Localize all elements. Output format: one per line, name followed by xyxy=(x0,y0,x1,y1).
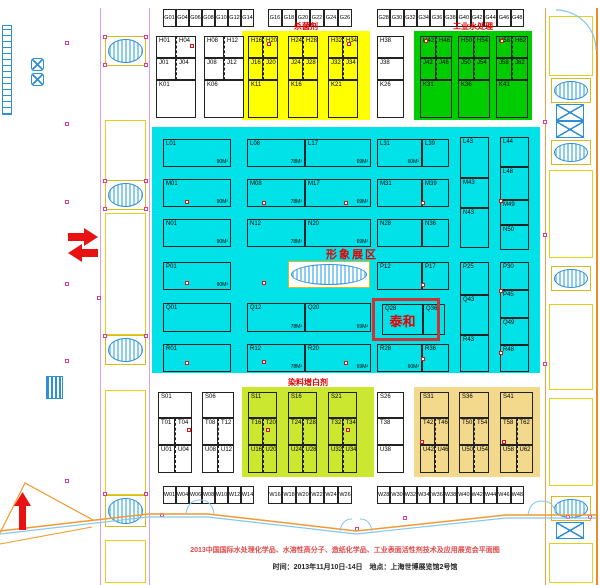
booth-H38: H38 xyxy=(377,36,404,58)
booth-N43: N43 xyxy=(460,208,489,248)
booth-W01: W01 xyxy=(163,486,176,504)
hydrant-marker-icon xyxy=(144,35,148,39)
booth-N12: N1278M² xyxy=(247,219,305,247)
booth-U32: U32 xyxy=(328,445,343,473)
booth-S11: S11 xyxy=(248,392,277,418)
booth-W38: W38 xyxy=(444,486,457,504)
booth-L48: L48 xyxy=(500,167,529,200)
booth-H46: H46 xyxy=(436,36,452,58)
booth-W26: W26 xyxy=(338,486,352,504)
booth-J54: J54 xyxy=(474,58,490,80)
booth-W12: W12 xyxy=(228,486,241,504)
booth-G08: G08 xyxy=(202,9,215,27)
booth-T32: T32 xyxy=(328,418,343,445)
booth-W06: W06 xyxy=(189,486,202,504)
booth-H50: H50 xyxy=(458,36,474,58)
booth-T28: T28 xyxy=(303,418,318,445)
booth-G01: G01 xyxy=(163,9,176,27)
booth-Q01: Q01 xyxy=(163,303,231,332)
booth-Q20: Q2069M² xyxy=(305,303,371,332)
booth-J24: J24 xyxy=(288,58,303,80)
booth-T24: T24 xyxy=(288,418,303,445)
booth-T38: T38 xyxy=(377,418,404,445)
equipment-marker-icon xyxy=(346,428,350,432)
hydrant-marker-icon xyxy=(65,41,69,45)
booth-U12: U12 xyxy=(218,445,234,473)
equipment-marker-icon xyxy=(262,360,266,364)
equipment-marker-icon xyxy=(185,361,189,365)
booth-N28: N28 xyxy=(377,219,422,247)
booth-G12: G12 xyxy=(228,9,241,27)
booth-G28: G28 xyxy=(377,9,390,27)
booth-H42: H42 xyxy=(420,36,436,58)
booth-S06: S06 xyxy=(202,392,234,418)
booth-H16: H16 xyxy=(248,36,263,58)
booth-R01: R01 xyxy=(163,344,231,372)
booth-Q12: Q1278M² xyxy=(247,303,305,332)
equipment-marker-icon xyxy=(190,44,194,48)
hydrant-marker-icon xyxy=(588,515,592,519)
booth-J32: J32 xyxy=(328,58,343,80)
booth-L01: L0190M² xyxy=(163,139,231,167)
booth-W18: W18 xyxy=(282,486,296,504)
booth-L08: L0878M² xyxy=(247,139,305,167)
booth-Q49: Q49 xyxy=(500,318,529,345)
hydrant-marker-icon xyxy=(566,515,570,519)
booth-T01: T01 xyxy=(158,418,175,445)
booth-H34: H34 xyxy=(343,36,358,58)
hydrant-marker-icon xyxy=(103,63,107,67)
booth-J62: J62 xyxy=(512,58,528,80)
booth-W04: W04 xyxy=(176,486,189,504)
hydrant-marker-icon xyxy=(103,35,107,39)
booth-W44: W44 xyxy=(484,486,497,504)
booth-L44: L44 xyxy=(500,137,529,167)
booth-M17: M1769M² xyxy=(305,179,371,207)
hydrant-marker-icon xyxy=(65,122,69,126)
booth-U46: U46 xyxy=(435,445,450,473)
industrial-water-zone-label: 工业水处理 xyxy=(414,21,532,32)
booth-K01: K01 xyxy=(156,80,196,118)
booth-K31: K31 xyxy=(420,80,452,118)
hydrant-marker-icon xyxy=(355,527,359,531)
booth-J50: J50 xyxy=(458,58,474,80)
equipment-marker-icon xyxy=(499,351,503,355)
booth-H54: H54 xyxy=(474,36,490,58)
booth-L17: L1769M² xyxy=(305,139,371,167)
booth-U54: U54 xyxy=(474,445,489,473)
booth-R20: R2069M² xyxy=(305,344,371,372)
equipment-marker-icon xyxy=(421,357,425,361)
booth-J04: J04 xyxy=(176,58,196,80)
booth-J58: J58 xyxy=(496,58,512,80)
exhibition-floor-plan: G01G04G06G08G10G12G14G16G18G20G22G24G26G… xyxy=(0,0,600,585)
booth-G04: G04 xyxy=(176,9,189,27)
booth-T62: T62 xyxy=(517,418,534,445)
booth-N20: N2069M² xyxy=(305,219,371,247)
equipment-marker-icon xyxy=(502,440,506,444)
hydrant-marker-icon xyxy=(65,200,69,204)
hydrant-marker-icon xyxy=(144,492,148,496)
booth-M43: M43 xyxy=(460,178,489,208)
booth-T46: T46 xyxy=(435,418,450,445)
booth-T50: T50 xyxy=(459,418,474,445)
hydrant-marker-icon xyxy=(97,296,101,300)
booth-U28: U28 xyxy=(303,445,318,473)
booth-W08: W08 xyxy=(202,486,215,504)
equipment-marker-icon xyxy=(344,201,348,205)
equipment-marker-icon xyxy=(185,281,189,285)
equipment-marker-icon xyxy=(262,201,266,205)
booth-R43: R43 xyxy=(460,335,489,372)
booth-J42: J42 xyxy=(420,58,436,80)
booth-T16: T16 xyxy=(248,418,263,445)
booth-J01: J01 xyxy=(156,58,176,80)
booth-H20: H20 xyxy=(263,36,278,58)
booth-W42: W42 xyxy=(471,486,484,504)
equipment-marker-icon xyxy=(499,199,503,203)
booth-U08: U08 xyxy=(202,445,218,473)
equipment-marker-icon xyxy=(347,42,351,46)
hydrant-marker-icon xyxy=(65,479,69,483)
booth-J08: J08 xyxy=(204,58,224,80)
booth-K06: K06 xyxy=(204,80,244,118)
booth-M08: M0878M² xyxy=(247,179,305,207)
booth-W28: W28 xyxy=(377,486,390,504)
booth-W46: W46 xyxy=(497,486,510,504)
booth-H12: H12 xyxy=(224,36,244,58)
booth-H08: H08 xyxy=(204,36,224,58)
booth-G10: G10 xyxy=(215,9,228,27)
booth-J34: J34 xyxy=(343,58,358,80)
booth-W22: W22 xyxy=(310,486,324,504)
booth-T12: T12 xyxy=(218,418,234,445)
equipment-marker-icon xyxy=(267,42,271,46)
booth-J46: J46 xyxy=(436,58,452,80)
booth-M31: M31 xyxy=(377,179,422,207)
booth-P17: P17 xyxy=(422,262,449,290)
booth-J12: J12 xyxy=(224,58,244,80)
hydrant-marker-icon xyxy=(65,282,69,286)
booth-U16: U16 xyxy=(248,445,263,473)
equipment-marker-icon xyxy=(420,440,424,444)
booth-R48: R48 xyxy=(500,345,529,372)
booth-T08: T08 xyxy=(202,418,218,445)
hydrant-marker-icon xyxy=(103,492,107,496)
booth-N36: N36 xyxy=(422,219,449,247)
booth-W24: W24 xyxy=(324,486,338,504)
booth-P30: P30 xyxy=(500,262,529,290)
booth-R36: R36 xyxy=(422,344,449,372)
booth-U01: U01 xyxy=(158,445,175,473)
hydrant-marker-icon xyxy=(103,334,107,338)
booth-H62: H62 xyxy=(512,36,528,58)
equipment-marker-icon xyxy=(344,361,348,365)
booth-J38: J38 xyxy=(377,58,404,80)
booth-S26: S26 xyxy=(377,392,404,418)
equipment-marker-icon xyxy=(421,201,425,205)
booth-H01: H01 xyxy=(156,36,176,58)
hydrant-marker-icon xyxy=(160,513,164,517)
booth-U58: U58 xyxy=(500,445,517,473)
equipment-marker-icon xyxy=(421,283,425,287)
booth-W30: W30 xyxy=(390,486,403,504)
booth-S41: S41 xyxy=(500,392,533,418)
equipment-marker-icon xyxy=(500,39,504,43)
booth-W16: W16 xyxy=(268,486,282,504)
escalator-icon xyxy=(288,261,370,288)
booth-K11: K11 xyxy=(248,80,278,118)
booth-K16: K16 xyxy=(288,80,318,118)
hydrant-marker-icon xyxy=(543,362,547,366)
booth-P01: P0190M² xyxy=(163,262,231,290)
booth-J20: J20 xyxy=(263,58,278,80)
booth-M39: M39 xyxy=(422,179,449,207)
equipment-marker-icon xyxy=(187,428,191,432)
booth-L31: L3160M² xyxy=(377,139,422,167)
booth-U04: U04 xyxy=(175,445,192,473)
booth-N01: N0190M² xyxy=(163,219,231,247)
booth-M49: M49 xyxy=(500,200,529,225)
booth-W48: W48 xyxy=(511,486,524,504)
booth-R28: R2860M² xyxy=(377,344,422,372)
booth-U20: U20 xyxy=(263,445,278,473)
booth-U24: U24 xyxy=(288,445,303,473)
hydrant-marker-icon xyxy=(144,63,148,67)
booth-J28: J28 xyxy=(303,58,318,80)
booth-U38: U38 xyxy=(377,445,404,473)
booth-J16: J16 xyxy=(248,58,263,80)
dye-whitening-zone-label: 染料增白剂 xyxy=(242,377,374,388)
booth-S16: S16 xyxy=(288,392,317,418)
booth-W14: W14 xyxy=(241,486,254,504)
plan-date-venue: 时间：2013年11月10日-14日 地点：上海世博展览馆2号馆 xyxy=(130,562,600,572)
booth-W10: W10 xyxy=(215,486,228,504)
booth-P12: P12 xyxy=(377,262,422,290)
hydrant-marker-icon xyxy=(144,179,148,183)
booth-R12: R1278M² xyxy=(247,344,305,372)
booth-N50: N50 xyxy=(500,225,529,250)
booth-K36: K36 xyxy=(458,80,490,118)
hydrant-marker-icon xyxy=(65,359,69,363)
booth-S01: S01 xyxy=(158,392,192,418)
booth-K41: K41 xyxy=(496,80,528,118)
booth-L43: L43 xyxy=(460,137,489,178)
equipment-marker-icon xyxy=(499,289,503,293)
hydrant-marker-icon xyxy=(144,334,148,338)
hydrant-marker-icon xyxy=(103,179,107,183)
booth-P45: P45 xyxy=(500,290,529,318)
image-display-zone-label: 形象展区 xyxy=(326,246,446,262)
booth-M01: M0190M² xyxy=(163,179,231,207)
booth-W34: W34 xyxy=(417,486,430,504)
booth-W32: W32 xyxy=(404,486,417,504)
hydrant-marker-icon xyxy=(403,516,407,520)
booth-W40: W40 xyxy=(457,486,470,504)
booth-W36: W36 xyxy=(430,486,443,504)
hydrant-marker-icon xyxy=(103,207,107,211)
equipment-marker-icon xyxy=(266,428,270,432)
booth-T54: T54 xyxy=(474,418,489,445)
booth-S36: S36 xyxy=(459,392,489,418)
booth-U50: U50 xyxy=(459,445,474,473)
booth-Q43: Q43 xyxy=(460,295,489,335)
booth-G06: G06 xyxy=(189,9,202,27)
booth-H24: H24 xyxy=(288,36,303,58)
taihe-booth-label: 泰和 xyxy=(382,311,423,330)
equipment-marker-icon xyxy=(185,200,189,204)
booth-G30: G30 xyxy=(390,9,403,27)
booth-K26: K26 xyxy=(377,80,404,118)
equipment-marker-icon xyxy=(424,39,428,43)
booth-W20: W20 xyxy=(296,486,310,504)
booth-H32: H32 xyxy=(328,36,343,58)
booth-L39: L39 xyxy=(422,139,449,167)
plan-title: 2013中国国际水处理化学品、水溶性高分子、造纸化学品、工业表面活性剂技术及应用… xyxy=(90,545,600,555)
hydrant-marker-icon xyxy=(543,120,547,124)
booth-P25: P25 xyxy=(460,262,489,295)
booth-H28: H28 xyxy=(303,36,318,58)
booth-S31: S31 xyxy=(420,392,449,418)
booth-H58: H58 xyxy=(496,36,512,58)
booth-U34: U34 xyxy=(343,445,358,473)
bactericide-zone-label: 杀菌剂 xyxy=(242,21,370,32)
booth-U62: U62 xyxy=(517,445,534,473)
booth-U42: U42 xyxy=(420,445,435,473)
booth-K21: K21 xyxy=(328,80,358,118)
hydrant-marker-icon xyxy=(543,233,547,237)
booth-layer: G01G04G06G08G10G12G14G16G18G20G22G24G26G… xyxy=(0,0,600,585)
booth-S21: S21 xyxy=(328,392,357,418)
hydrant-marker-icon xyxy=(144,207,148,211)
equipment-marker-icon xyxy=(262,281,266,285)
